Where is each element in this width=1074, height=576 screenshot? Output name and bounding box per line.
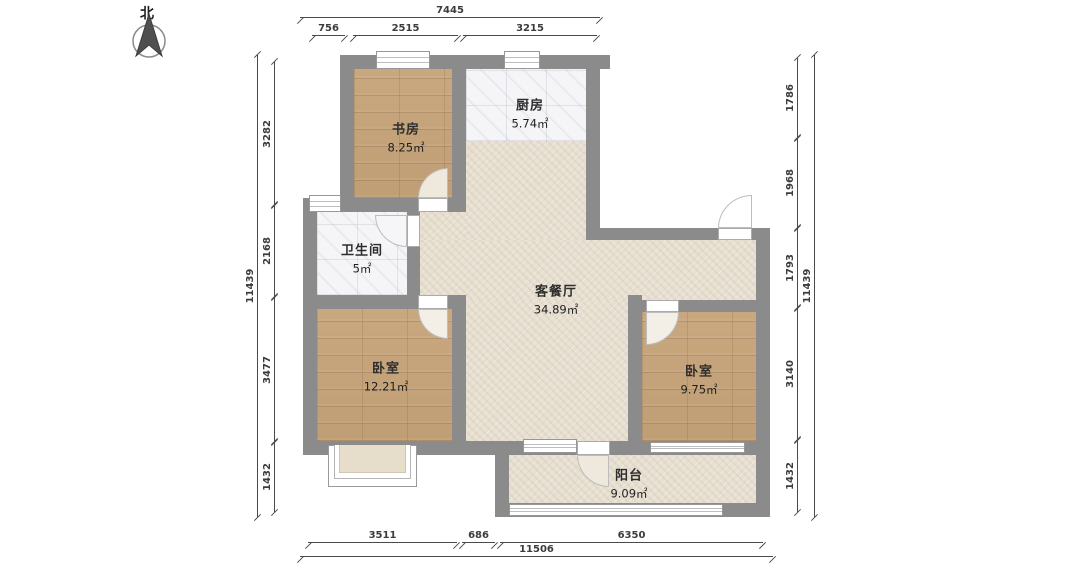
wall-right-outer (756, 228, 770, 517)
dim-left-seg-2: 2168 (263, 205, 275, 297)
dim-left-total: 11439 (246, 55, 258, 517)
door-study (418, 198, 448, 212)
window-bedroom-right-bottom (650, 442, 745, 453)
room-label-bedroom-left: 卧室 12.21㎡ (364, 358, 408, 395)
window-balcony-bottom (509, 504, 723, 516)
room-name-balcony: 阳台 (610, 465, 647, 484)
dim-right-seg-2: 1968 (786, 138, 798, 228)
room-area-bathroom: 5㎡ (341, 261, 383, 277)
room-label-living: 客餐厅 34.89㎡ (534, 281, 578, 318)
dim-left-seg-4: 1432 (263, 442, 275, 512)
door-entrance (718, 228, 752, 240)
room-area-living: 34.89㎡ (534, 302, 578, 318)
room-label-study: 书房 8.25㎡ (387, 119, 424, 156)
window-living-sliding (523, 439, 577, 453)
dim-bottom-seg-1: 3511 (308, 531, 457, 543)
room-area-balcony: 9.09㎡ (610, 486, 647, 502)
wall-kitchen-right (586, 55, 600, 240)
room-name-bedroom-right: 卧室 (680, 361, 717, 380)
door-bathroom (407, 215, 420, 247)
door-arc-entrance (718, 195, 752, 228)
room-label-bathroom: 卫生间 5㎡ (341, 240, 383, 277)
window-kitchen-top (504, 51, 540, 69)
wall-bedroom-right-left (628, 295, 642, 455)
room-name-living: 客餐厅 (534, 281, 578, 300)
room-name-bedroom-left: 卧室 (364, 358, 408, 377)
dim-right-seg-3: 1793 (786, 228, 798, 308)
door-bedroom-left (418, 295, 448, 309)
room-area-bedroom-right: 9.75㎡ (680, 382, 717, 398)
room-label-bedroom-right: 卧室 9.75㎡ (680, 361, 717, 398)
floor-living-mid (420, 240, 756, 300)
dim-top-seg-1: 756 (312, 24, 345, 36)
dim-top-seg-2: 2515 (353, 24, 458, 36)
wall-study-kitchen (452, 69, 466, 212)
dim-left-seg-1: 3282 (263, 62, 275, 205)
dim-right-total: 11439 (803, 55, 815, 517)
wall-study-left (340, 55, 354, 212)
bay-window-sill (339, 445, 406, 473)
dim-bottom-seg-2: 686 (462, 531, 495, 543)
wall-bedroom-left-right (452, 295, 466, 455)
room-area-kitchen: 5.74㎡ (511, 116, 548, 132)
dim-bottom-seg-3: 6350 (500, 531, 763, 543)
window-bathroom-top (309, 195, 341, 212)
room-area-study: 8.25㎡ (387, 140, 424, 156)
door-bedroom-right (646, 300, 679, 312)
dim-right-seg-5: 1432 (786, 440, 798, 512)
dim-bottom-total: 11506 (300, 545, 773, 557)
wall-left-outer (303, 198, 317, 455)
dim-top-total: 7445 (300, 6, 600, 18)
window-study-top (376, 51, 430, 69)
floor-plan: 书房 8.25㎡ 厨房 5.74㎡ 卫生间 5㎡ 客餐厅 34.89㎡ 卧室 1… (0, 0, 1074, 576)
room-label-kitchen: 厨房 5.74㎡ (511, 95, 548, 132)
compass-icon (128, 12, 170, 60)
floor-living-upper (466, 141, 586, 240)
room-label-balcony: 阳台 9.09㎡ (610, 465, 647, 502)
room-name-kitchen: 厨房 (511, 95, 548, 114)
room-area-bedroom-left: 12.21㎡ (364, 379, 408, 395)
room-name-bathroom: 卫生间 (341, 240, 383, 259)
dim-right-seg-1: 1786 (786, 58, 798, 138)
floor-living-lower (466, 300, 628, 441)
dim-left-seg-3: 3477 (263, 297, 275, 442)
dim-top-seg-3: 3215 (463, 24, 597, 36)
door-balcony (577, 441, 610, 455)
room-name-study: 书房 (387, 119, 424, 138)
dim-right-seg-4: 3140 (786, 308, 798, 440)
